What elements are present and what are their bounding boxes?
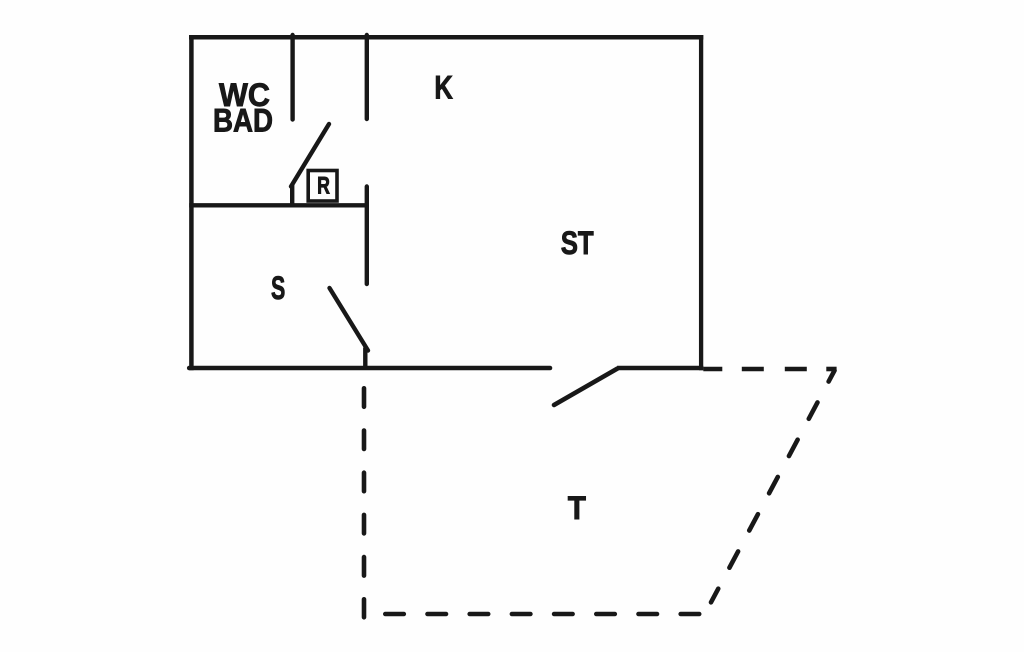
svg-text:ST: ST (561, 225, 594, 261)
svg-text:R: R (317, 173, 330, 200)
svg-text:T: T (568, 490, 586, 526)
svg-text:BAD: BAD (213, 103, 273, 139)
svg-text:S: S (271, 270, 285, 306)
svg-text:K: K (434, 70, 453, 106)
